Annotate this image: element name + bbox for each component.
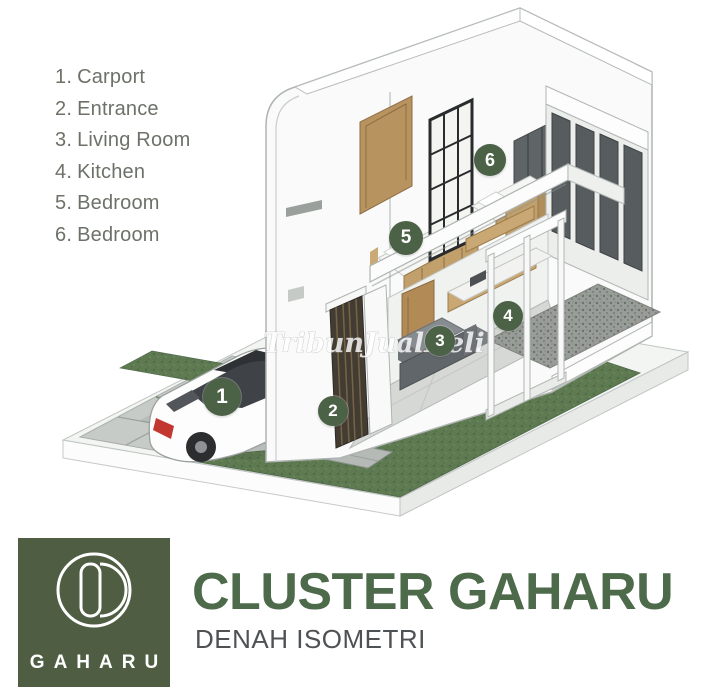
page-title: CLUSTER GAHARU [192, 562, 673, 622]
gaharu-logo: GAHARU [18, 538, 170, 687]
room-marker-entrance: 2 [318, 396, 348, 426]
room-marker-bedroom-5: 5 [389, 221, 423, 255]
gaharu-logo-mark [18, 538, 170, 642]
room-marker-living-room: 3 [425, 326, 455, 356]
isometric-house-illustration: TribunJualBeli [0, 0, 720, 540]
page: { "legend": { "items": [ {"number": "1."… [0, 0, 720, 697]
logo-wordmark: GAHARU [18, 652, 170, 674]
room-marker-bedroom-6: 6 [474, 144, 506, 176]
room-marker-kitchen: 4 [493, 301, 523, 331]
page-subtitle: DENAH ISOMETRI [195, 624, 426, 655]
room-marker-carport: 1 [203, 378, 241, 416]
